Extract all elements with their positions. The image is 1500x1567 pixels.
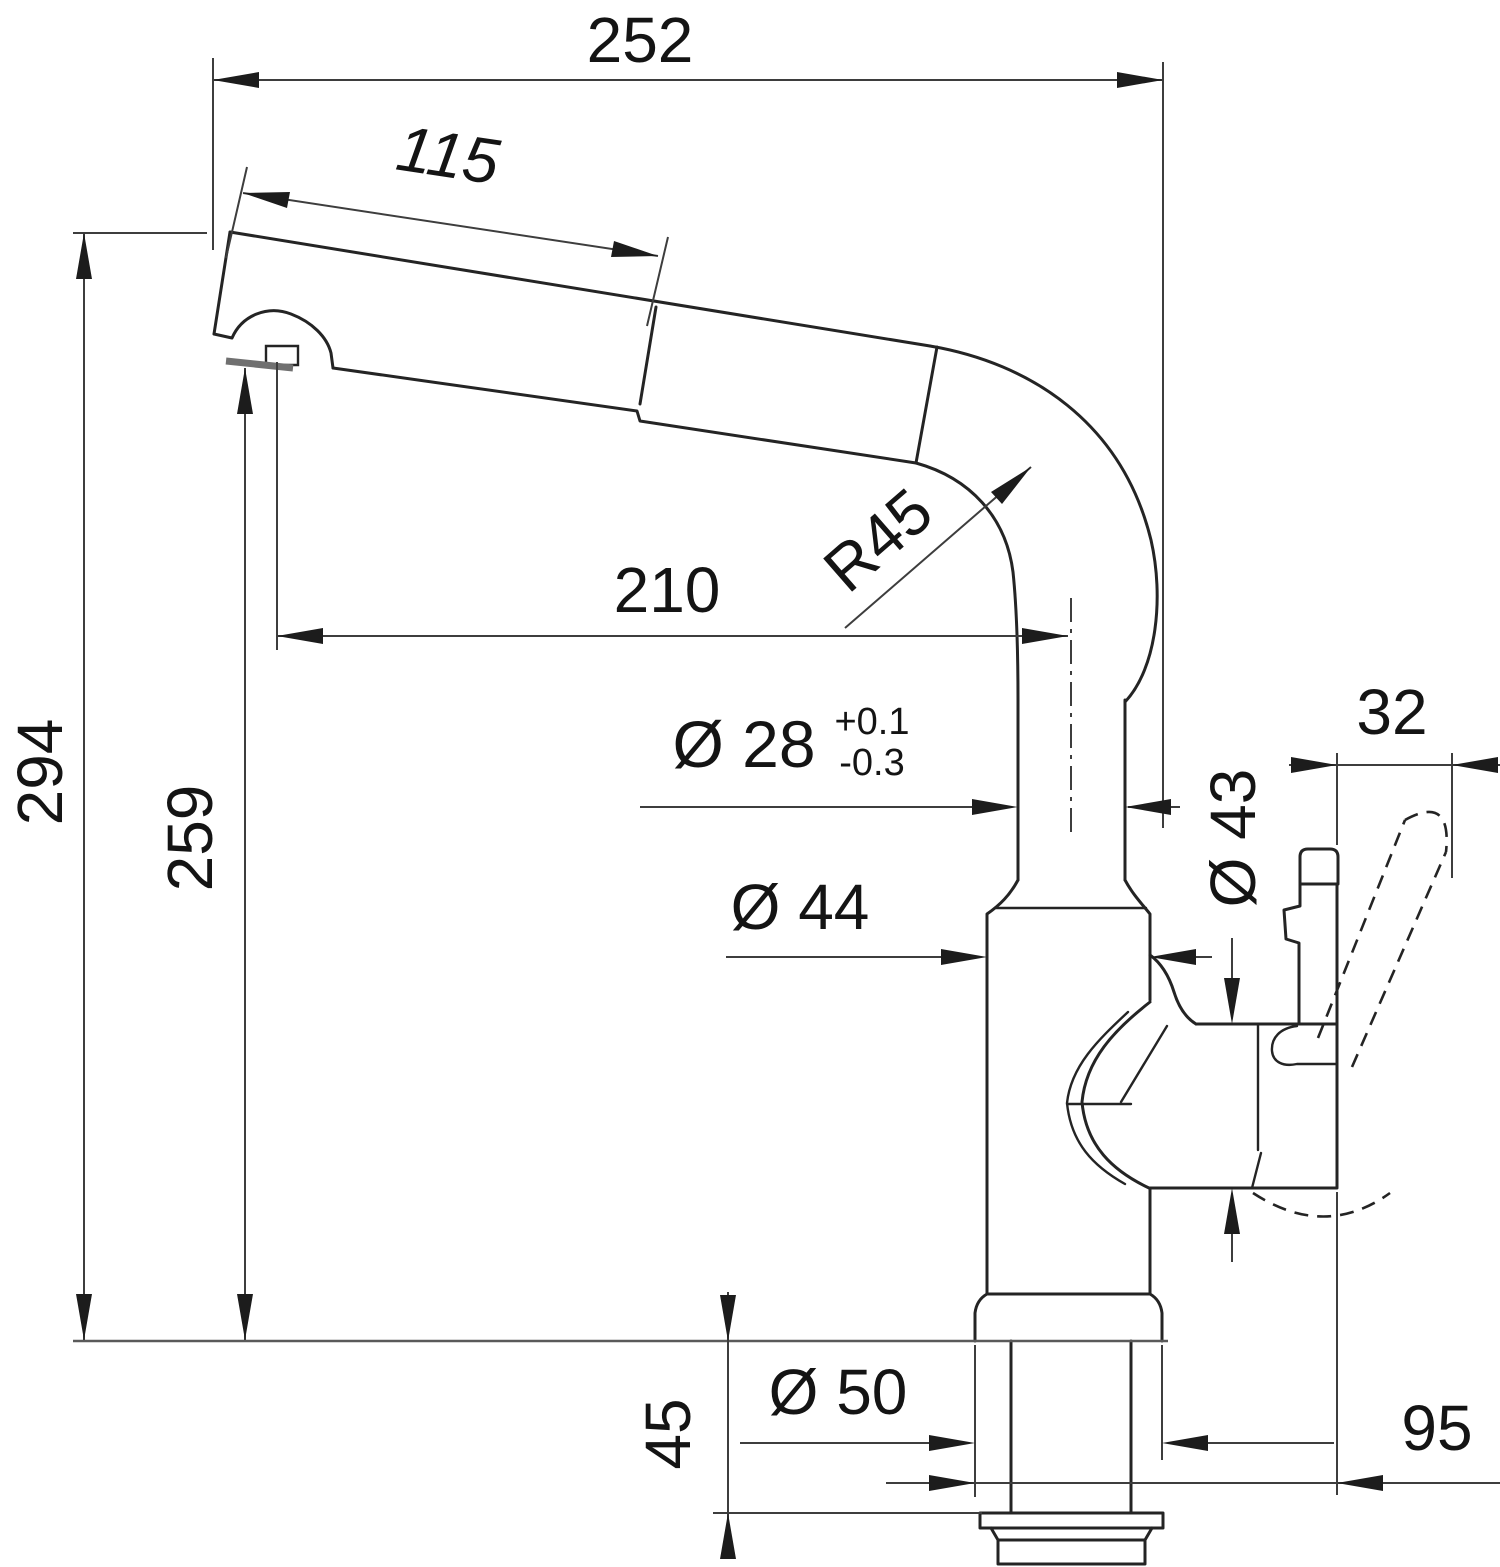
aerator-notch	[266, 346, 298, 365]
arrowhead	[76, 1294, 92, 1340]
faucet-technical-drawing: 252 115 294 259 210 R45 Ø 28	[0, 0, 1500, 1567]
dim-reach: 210	[277, 362, 1068, 650]
arrowhead	[1452, 757, 1498, 773]
dim-bend-radius-label: R45	[810, 474, 946, 605]
arrowhead	[941, 949, 987, 965]
dim-cartridge-diameter-label: Ø 43	[1197, 769, 1269, 908]
arrowhead	[929, 1475, 975, 1491]
shank-nut-plate	[980, 1513, 1163, 1528]
arrowhead	[1224, 1188, 1240, 1234]
arrowhead	[213, 72, 259, 88]
dim-outlet-height-label: 259	[154, 785, 226, 892]
dim-spray-head-length-label: 115	[392, 112, 504, 199]
hub-front-face	[1252, 1024, 1261, 1188]
arrowhead	[237, 1294, 253, 1340]
dim-shank-length-label: 45	[632, 1398, 704, 1469]
dim-body-diameter-label: Ø 44	[731, 871, 870, 943]
dim-outlet-height: 259	[154, 368, 253, 1340]
body-left-shoulder	[987, 880, 1018, 1294]
arrowhead	[1162, 1435, 1208, 1451]
arrowhead	[929, 1435, 975, 1451]
spout-bottom-edge	[333, 368, 916, 463]
body-boss-facet	[1121, 1026, 1167, 1102]
arrowhead	[1224, 978, 1240, 1024]
dim-reach-label: 210	[614, 554, 721, 626]
arrowhead	[76, 233, 92, 279]
bend-joint-line	[916, 347, 937, 463]
arrowhead	[277, 628, 323, 644]
dim-riser-diameter-label: Ø 28	[672, 707, 815, 781]
dim-total-height-label: 294	[4, 719, 76, 826]
arrowhead	[1291, 757, 1337, 773]
arrowhead	[1022, 628, 1068, 644]
dim-lever-reach-label: 95	[1401, 1392, 1472, 1464]
base-flange	[975, 1294, 1162, 1341]
dim-riser-tol-minus: -0.3	[839, 742, 904, 784]
hub-outline	[1150, 884, 1337, 1188]
lever-solid	[1284, 849, 1338, 1024]
shank-edges	[1011, 1341, 1131, 1513]
dim-bend-radius: R45	[810, 467, 1031, 628]
arrowhead	[611, 241, 658, 257]
dim-line	[1289, 753, 1500, 878]
aerator-outlet-face	[226, 361, 293, 368]
arrowhead	[1337, 1475, 1383, 1491]
hub-lever-lip	[1272, 1026, 1337, 1065]
dim-base-diameter: Ø 50	[740, 1345, 1334, 1497]
dim-overall-width-label: 252	[587, 4, 694, 76]
spout-top-edge	[230, 232, 930, 346]
dim-riser-diameter: Ø 28 +0.1 -0.3	[640, 701, 1180, 815]
arrowhead	[720, 1295, 736, 1341]
dim-lever-tip-width-label: 32	[1356, 676, 1427, 748]
lever-dashed-alt-position	[1253, 812, 1447, 1217]
dim-overall-width: 252	[213, 4, 1163, 828]
arrowhead	[991, 467, 1031, 504]
arrowhead	[720, 1513, 736, 1559]
dim-base-diameter-label: Ø 50	[769, 1356, 908, 1428]
shank-nut-block	[991, 1528, 1152, 1564]
arrowhead	[243, 192, 290, 208]
arrowhead	[1125, 799, 1171, 815]
body-waist-curve-inner	[1067, 1012, 1128, 1184]
arrowhead	[1117, 72, 1163, 88]
body-boss-outline	[1150, 955, 1196, 1024]
drawing-svg: 252 115 294 259 210 R45 Ø 28	[0, 0, 1500, 1567]
arrowhead	[237, 368, 253, 414]
arrowhead	[972, 799, 1018, 815]
body-right-shoulder	[1125, 880, 1150, 1000]
dim-lever-reach: 95	[886, 1192, 1500, 1495]
dim-riser-tol-plus: +0.1	[834, 701, 909, 743]
dim-body-diameter: Ø 44	[726, 871, 1212, 965]
